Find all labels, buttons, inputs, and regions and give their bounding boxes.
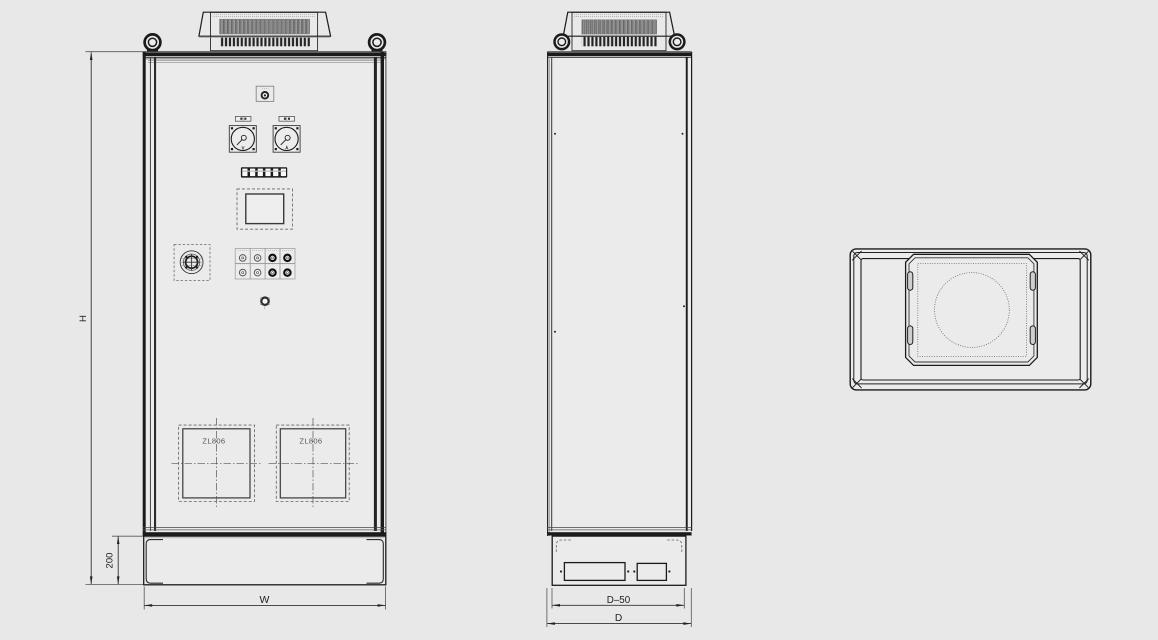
svg-text:ZL806: ZL806 (299, 437, 322, 446)
svg-text:D–50: D–50 (607, 595, 631, 606)
svg-text:200: 200 (104, 553, 115, 569)
svg-text:ZL806: ZL806 (202, 437, 225, 446)
svg-text:H: H (78, 315, 89, 322)
svg-text:W: W (260, 594, 270, 606)
svg-text:D: D (615, 613, 622, 624)
